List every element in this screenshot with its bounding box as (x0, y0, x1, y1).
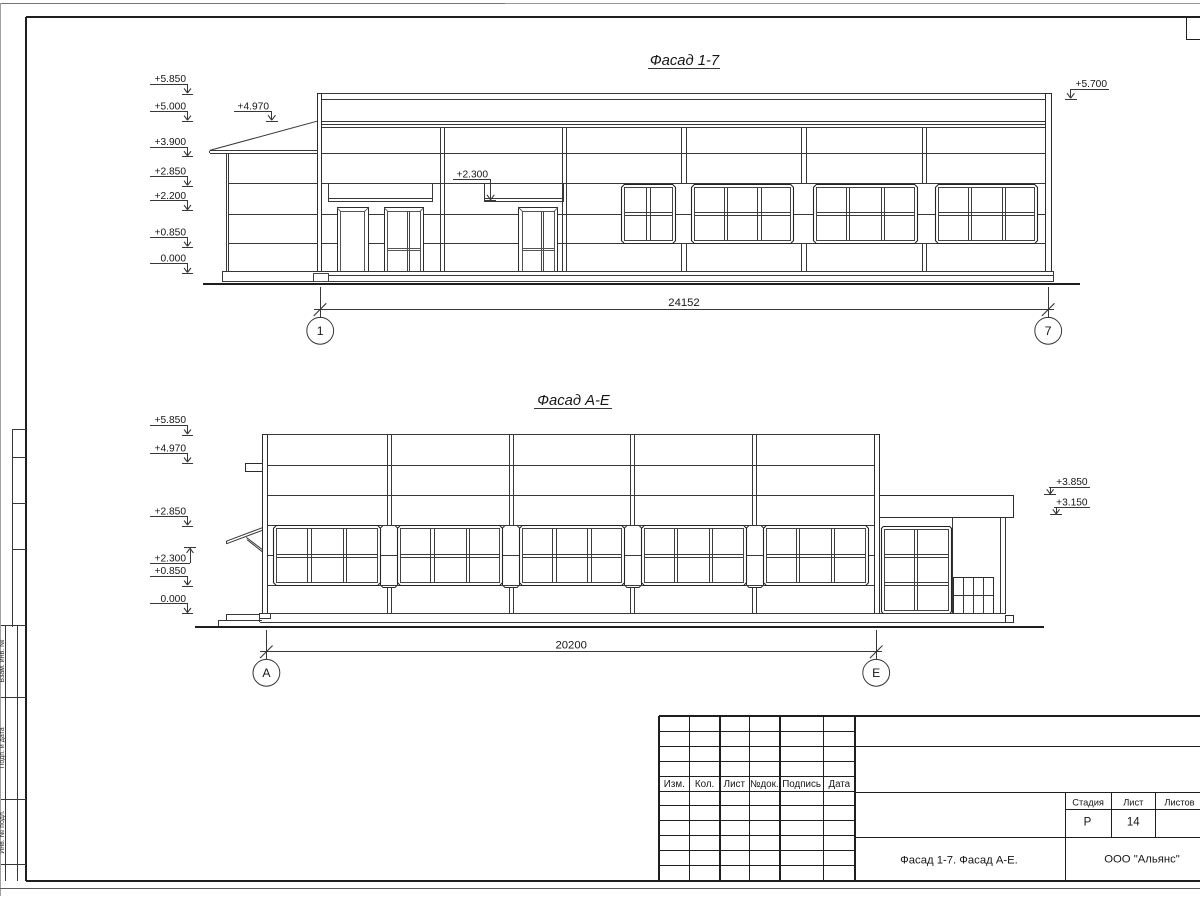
svg-text:+4.970: +4.970 (155, 443, 187, 454)
svg-text:20200: 20200 (555, 639, 586, 651)
svg-text:А: А (262, 666, 271, 680)
svg-text:+4.970: +4.970 (238, 101, 270, 112)
svg-text:+3.850: +3.850 (1056, 477, 1088, 488)
svg-text:Изм.: Изм. (664, 779, 685, 790)
svg-text:7: 7 (1045, 324, 1052, 338)
svg-text:Кол.: Кол. (695, 779, 714, 790)
svg-text:14: 14 (1127, 817, 1140, 829)
svg-text:+5.700: +5.700 (1076, 79, 1108, 90)
svg-text:Дата: Дата (828, 779, 850, 790)
svg-text:+3.900: +3.900 (155, 137, 187, 148)
svg-text:ООО "Альянс": ООО "Альянс" (1104, 853, 1180, 865)
svg-text:Лист: Лист (1123, 797, 1144, 807)
svg-text:Фасад А-Е: Фасад А-Е (537, 393, 610, 409)
svg-text:1: 1 (317, 324, 324, 338)
svg-text:Фасад 1-7: Фасад 1-7 (650, 53, 720, 69)
svg-text:+2.300: +2.300 (155, 553, 187, 564)
svg-text:+0.850: +0.850 (155, 566, 187, 577)
svg-text:Подп. и дата: Подп. и дата (0, 727, 6, 768)
svg-text:Инв. № подл.: Инв. № подл. (0, 810, 6, 854)
svg-text:+2.300: +2.300 (457, 169, 489, 180)
svg-text:Листов: Листов (1164, 797, 1194, 807)
svg-text:Е: Е (872, 666, 880, 680)
svg-text:№док.: №док. (750, 779, 779, 790)
svg-text:+5.850: +5.850 (155, 415, 187, 426)
svg-text:+5.850: +5.850 (155, 74, 187, 85)
svg-text:Взам. инв. №: Взам. инв. № (0, 639, 6, 682)
svg-text:+0.850: +0.850 (155, 228, 187, 239)
svg-text:+2.850: +2.850 (155, 506, 187, 517)
svg-text:Лист: Лист (724, 779, 746, 790)
svg-text:+2.850: +2.850 (155, 167, 187, 178)
svg-text:+3.150: +3.150 (1056, 497, 1088, 508)
svg-text:24152: 24152 (668, 297, 699, 309)
svg-text:Фасад 1-7. Фасад А-Е.: Фасад 1-7. Фасад А-Е. (900, 854, 1018, 866)
svg-text:+5.000: +5.000 (155, 101, 187, 112)
svg-text:Р: Р (1084, 817, 1092, 829)
svg-text:Подпись: Подпись (782, 779, 821, 790)
svg-text:Стадия: Стадия (1072, 797, 1104, 807)
